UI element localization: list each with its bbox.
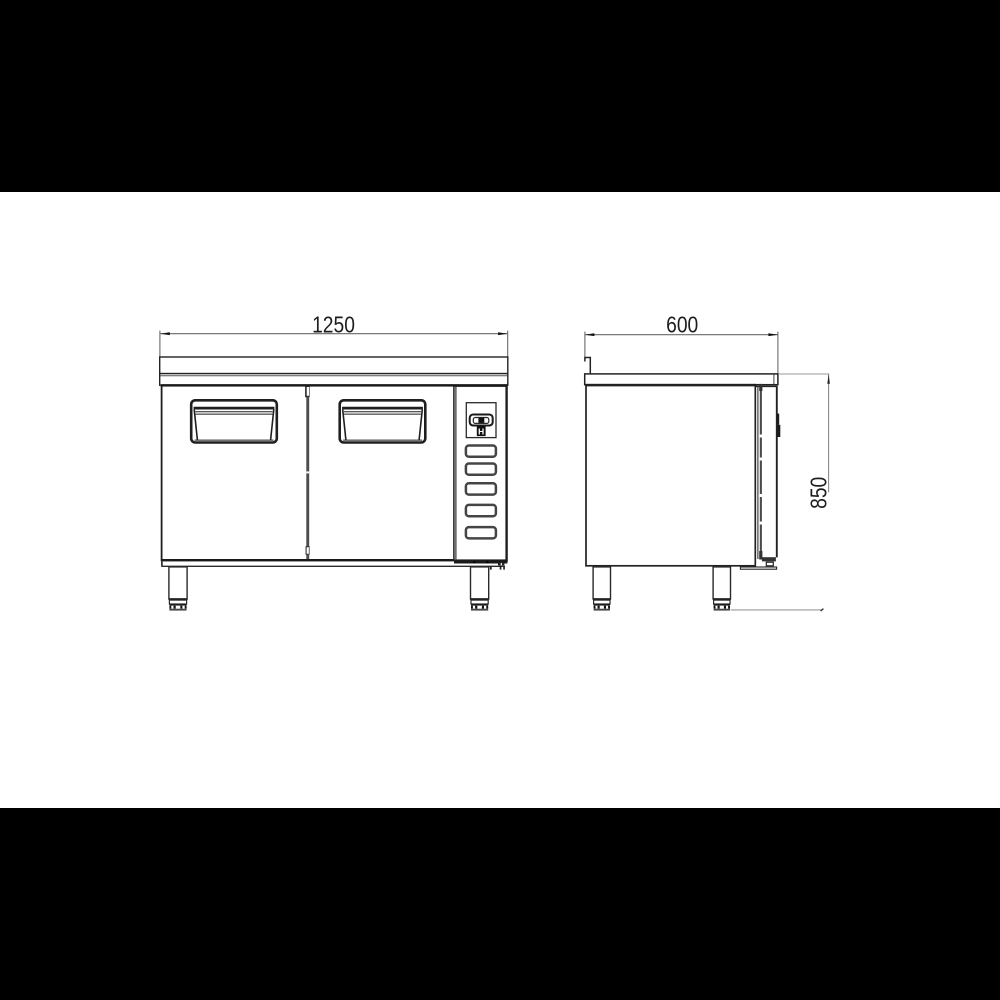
svg-text:850: 850 — [806, 477, 832, 509]
svg-text:H: H — [478, 426, 484, 436]
svg-text:600: 600 — [666, 312, 698, 338]
